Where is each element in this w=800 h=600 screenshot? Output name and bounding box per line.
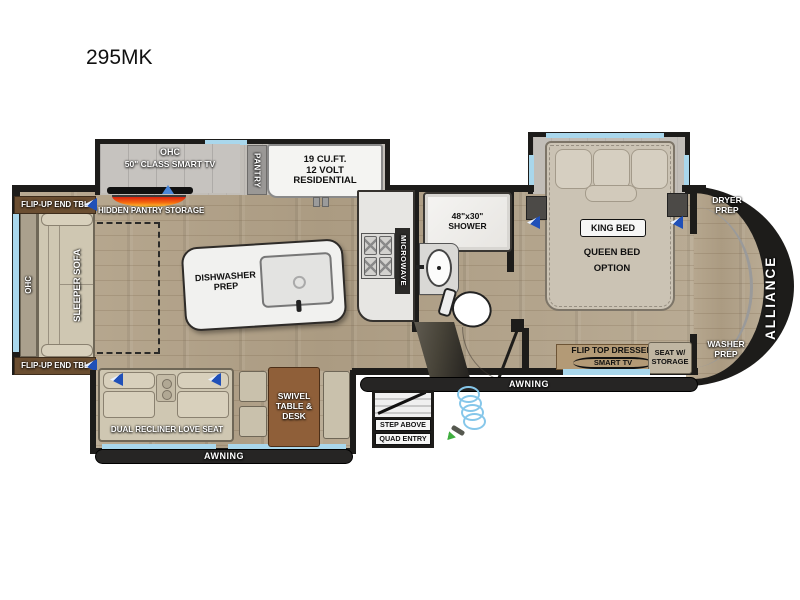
- bed: KING BED QUEEN BED OPTION: [545, 141, 675, 311]
- ohc-cabinet-label: OHC: [100, 147, 240, 157]
- cupholder-icon: [162, 390, 172, 400]
- cupholder-icon: [162, 379, 172, 389]
- pillow: [593, 149, 630, 189]
- nightstand: [667, 193, 688, 217]
- swivel-table-desk: SWIVEL TABLE & DESK: [268, 367, 320, 447]
- sink-drain: [293, 275, 307, 289]
- pillow: [631, 149, 668, 189]
- fridge-handle: [313, 197, 320, 207]
- sofa-ohc-label: OHC: [24, 276, 33, 294]
- sofa-backrest: [41, 215, 60, 355]
- fridge-line3: RESIDENTIAL: [293, 176, 356, 187]
- flip-up-end-table-label: FLIP-UP END TBL: [21, 200, 89, 209]
- bedroom-slide-window-top: [546, 133, 664, 138]
- hidden-pantry-label: HIDDEN PANTRY STORAGE: [98, 206, 204, 215]
- floorplan-canvas: 295MK DRYER PREP WASHER PREP ALLIANCE OH…: [0, 0, 800, 600]
- sofa-armrest: [41, 213, 93, 226]
- recliner-backrest: [103, 372, 155, 389]
- model-title: 295MK: [86, 46, 153, 70]
- quad-entry-label: QUAD ENTRY: [379, 435, 426, 443]
- king-bed-label: KING BED: [591, 223, 635, 233]
- pantry-label: PANTRY: [252, 153, 261, 188]
- brand-name: ALLIANCE: [760, 228, 782, 368]
- desk-chair: [239, 406, 267, 437]
- island-sink: [259, 252, 334, 308]
- burner-icon: [364, 236, 377, 255]
- dual-recliner-label: DUAL RECLINER LOVE SEAT: [100, 425, 234, 434]
- top-wall-rear: [12, 185, 100, 192]
- sink-dot: [437, 266, 441, 270]
- smart-tv-label: 50" CLASS SMART TV: [100, 160, 240, 170]
- pillow: [555, 149, 592, 189]
- shower-label: SHOWER: [448, 222, 486, 232]
- microwave-label: MICROWAVE: [398, 235, 407, 286]
- burner-icon: [379, 236, 392, 255]
- flip-up-end-table-label: FLIP-UP END TBL: [21, 361, 89, 370]
- hose-coil: [463, 413, 486, 430]
- bedroom-bottom-window: [563, 369, 650, 375]
- bedroom-door-frame-wall: [522, 328, 529, 375]
- bedroom-slide-window-right: [684, 155, 689, 185]
- hose-nozzle: [451, 425, 466, 437]
- entry-steps-treads: [375, 393, 431, 417]
- pillow-small: [585, 185, 637, 202]
- rear-window: [13, 214, 19, 352]
- dryer-prep-label: DRYER PREP: [704, 196, 750, 216]
- quad-entry-badge: QUAD ENTRY: [375, 433, 431, 445]
- washer-prep-label: WASHER PREP: [700, 340, 752, 360]
- queen-option-label: QUEEN BED OPTION: [570, 245, 654, 277]
- burner-icon: [379, 257, 392, 276]
- awning-label: AWNING: [509, 379, 549, 389]
- flip-up-end-table-bottom: FLIP-UP END TBL: [14, 357, 96, 375]
- island-faucet-icon: [296, 300, 302, 312]
- console-cupholders: [156, 374, 176, 402]
- swivel-table-label: SWIVEL TABLE & DESK: [272, 392, 316, 421]
- recliner-backrest: [177, 372, 229, 389]
- sleeper-sofa: SLEEPER SOFA: [37, 209, 95, 361]
- dishwasher-prep-label: DISHWASHER PREP: [190, 269, 261, 294]
- step-above-label: STEP ABOVE: [380, 421, 426, 429]
- sofa-armrest: [41, 344, 93, 357]
- entry-rail: [377, 393, 426, 414]
- bench-seat: [323, 371, 350, 439]
- desk-chair: [239, 371, 267, 402]
- microwave-cabinet: MICROWAVE: [395, 228, 410, 294]
- bedroom-door-swing-arc: [462, 327, 519, 384]
- step-above-badge: STEP ABOVE: [375, 419, 431, 431]
- bedroom-tv-icon: SMART TV: [573, 357, 653, 369]
- bedroom-slide-window-left: [529, 155, 534, 185]
- hose-nozzle-tip: [447, 431, 457, 441]
- flip-up-end-table-top: FLIP-UP END TBL: [14, 196, 96, 214]
- spray-hose-icon: [448, 386, 484, 440]
- bath-sink: [426, 249, 452, 287]
- top-wall-front: [682, 185, 706, 192]
- seat-storage-label: SEAT W/ STORAGE: [649, 349, 691, 366]
- seat-with-storage: SEAT W/ STORAGE: [648, 342, 692, 374]
- awning-label: AWNING: [204, 451, 244, 461]
- king-bed-badge: KING BED: [580, 219, 646, 237]
- recliner-seat: [177, 391, 229, 418]
- cap-wall-top-stub: [690, 192, 697, 234]
- burner-icon: [364, 257, 377, 276]
- awning-bar-left: AWNING: [95, 449, 353, 464]
- pantry-cabinet: PANTRY: [247, 145, 267, 195]
- sleeper-sofa-label: SLEEPER SOFA: [73, 249, 84, 322]
- recliner-seat: [103, 391, 155, 418]
- entry-steps: STEP ABOVE QUAD ENTRY: [372, 390, 434, 448]
- fridge-handle: [322, 197, 329, 207]
- nightstand: [526, 196, 547, 220]
- fridge-line1: 19 CU.FT.: [304, 155, 347, 166]
- sofa-ohc: OHC: [20, 213, 37, 357]
- bedroom-smart-tv-label: SMART TV: [594, 359, 632, 368]
- bath-faucet-icon: [416, 265, 424, 269]
- range-stove: [361, 233, 395, 279]
- tv-icon: [107, 187, 193, 194]
- kitchen-island: DISHWASHER PREP: [181, 238, 348, 332]
